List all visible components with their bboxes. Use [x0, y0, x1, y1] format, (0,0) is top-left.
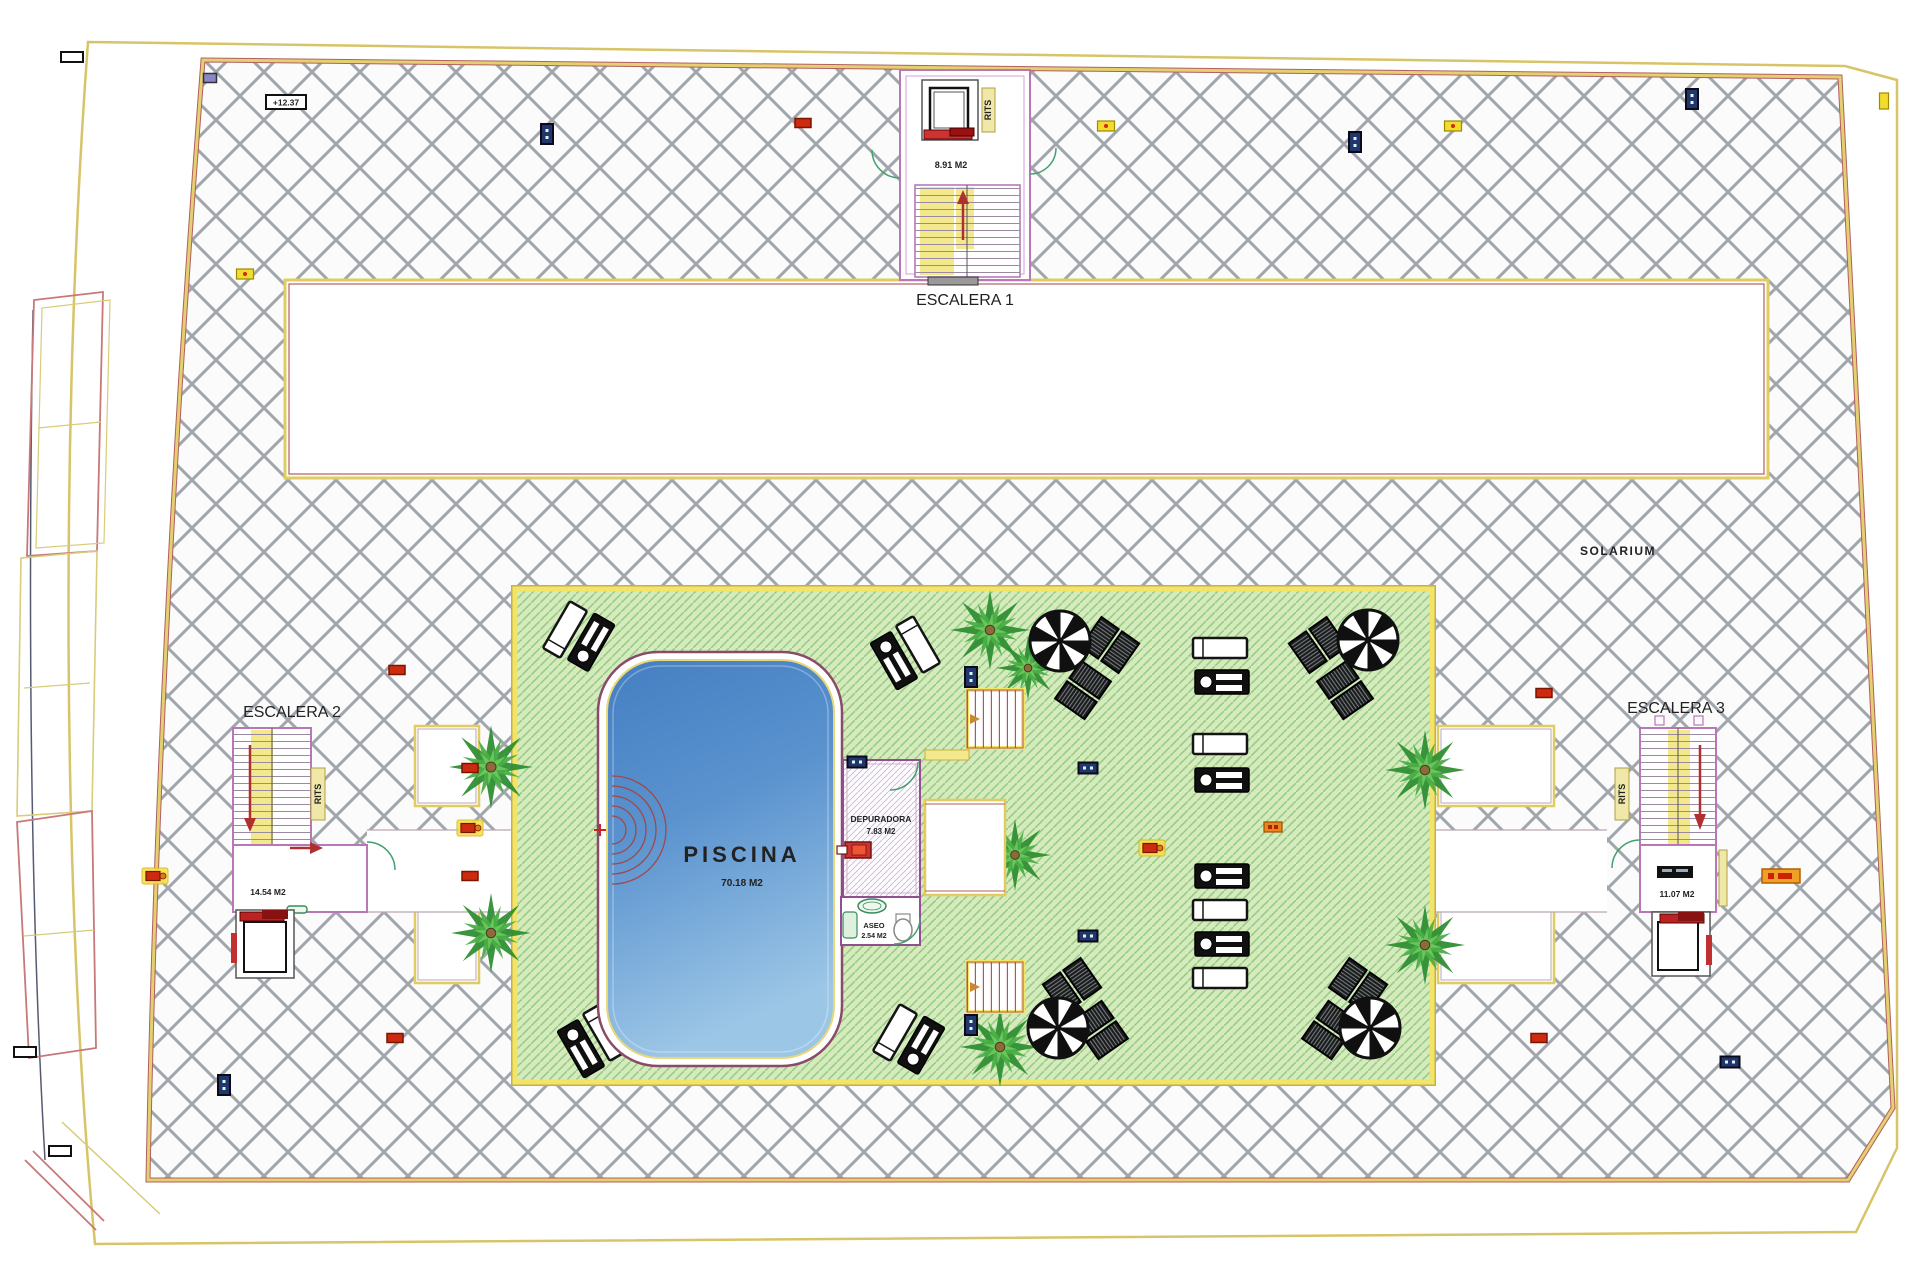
annotation-marker-blue-v	[1349, 132, 1361, 152]
annotation-marker-red	[462, 764, 478, 773]
annotation-marker-yellow	[1098, 121, 1115, 131]
stair-core-escalera-1: RITS 8.91 M2 ESCALERA 1	[872, 70, 1056, 309]
pool-name-label: PISCINA	[683, 842, 800, 867]
parasol-umbrella	[1028, 998, 1088, 1058]
elevator-car	[930, 88, 968, 132]
sun-lounger-occupied	[1195, 768, 1249, 792]
sun-lounger-white	[1193, 968, 1247, 988]
parasol-umbrella	[1340, 998, 1400, 1058]
property-line	[31, 310, 45, 1160]
parasol-umbrella	[1030, 611, 1090, 671]
floor-plan-canvas: PISCINA 70.18 M2 DEPURADORA 7.83 M2	[0, 0, 1920, 1280]
parasol-umbrella	[1338, 610, 1398, 670]
annotation-marker-blue-v	[965, 1015, 977, 1035]
sink-fixture	[858, 899, 886, 913]
vestibule	[233, 845, 367, 912]
sun-lounger-white	[1193, 638, 1247, 658]
elevation-label: +12.37	[273, 98, 300, 108]
annotation-marker-orange-tag	[1762, 869, 1800, 883]
annotation-marker-blue-v	[541, 124, 553, 144]
annotation-marker-blue-v	[218, 1075, 230, 1095]
rits-label: RITS	[313, 784, 323, 805]
annotation-marker-red	[389, 666, 405, 675]
annotation-marker-tick-purple	[204, 74, 217, 83]
annotation-marker-blue	[1079, 931, 1098, 942]
annotation-marker-red-yellow	[457, 820, 483, 836]
escalera3-area-label: 11.07 M2	[1660, 889, 1695, 899]
annotation-marker-red	[1536, 689, 1552, 698]
escalera2-title: ESCALERA 2	[243, 704, 341, 721]
pool-area-label: 70.18 M2	[721, 878, 763, 889]
escalera1-area-label: 8.91 M2	[935, 160, 968, 170]
vestibule	[1640, 845, 1716, 912]
annotation-marker-red	[387, 1034, 403, 1043]
annotation-marker-red	[795, 119, 811, 128]
sun-lounger-occupied	[1195, 864, 1249, 888]
annotation-marker-yellow	[1445, 121, 1462, 131]
sun-lounger-occupied	[1195, 932, 1249, 956]
aseo-name-label: ASEO	[863, 921, 884, 930]
sun-lounger-occupied	[1195, 670, 1249, 694]
annotation-marker-yellow	[237, 269, 254, 279]
floor-plan-svg: PISCINA 70.18 M2 DEPURADORA 7.83 M2	[0, 0, 1920, 1280]
annotation-marker-red	[1531, 1034, 1547, 1043]
depuradora-area-label: 7.83 M2	[867, 827, 896, 836]
palm-tree	[1385, 730, 1465, 810]
elevation-marker: +12.37	[266, 95, 306, 109]
annotation-marker-blue-v	[1686, 89, 1698, 109]
sun-lounger-white	[1193, 900, 1247, 920]
escalera3-title: ESCALERA 3	[1627, 700, 1725, 717]
annotation-marker-tick	[49, 1146, 71, 1156]
palm-tree	[451, 893, 531, 973]
recreation-deck: PISCINA 70.18 M2 DEPURADORA 7.83 M2	[449, 586, 1465, 1087]
deck-entry-steps	[967, 690, 1023, 748]
depuradora-room: DEPURADORA 7.83 M2	[837, 760, 920, 897]
annotation-marker-blue-v	[965, 667, 977, 687]
annotation-marker-blue	[1079, 763, 1098, 774]
annotation-marker-red	[462, 872, 478, 881]
toilet-bowl	[894, 919, 912, 941]
annotation-marker-tick	[61, 52, 83, 62]
solarium-label: SOLARIUM	[1580, 544, 1656, 558]
annotation-marker-yellow-v	[1880, 93, 1889, 109]
escalera2-area-label: 14.54 M2	[250, 887, 286, 897]
annotation-marker-blue	[848, 757, 867, 768]
sun-lounger-white	[1193, 734, 1247, 754]
annotation-marker-tick	[14, 1047, 36, 1057]
annotation-marker-blue	[1721, 1057, 1740, 1068]
palm-tree	[1385, 905, 1465, 985]
escalera1-title: ESCALERA 1	[916, 292, 1014, 309]
annotation-marker-red-yellow	[142, 868, 168, 884]
aseo-area-label: 2.54 M2	[861, 933, 886, 940]
swimming-pool: PISCINA 70.18 M2	[594, 652, 842, 1066]
annotation-marker-orange	[1264, 822, 1282, 832]
stair-run	[915, 185, 1020, 285]
lower-building-void	[285, 280, 1768, 478]
deck-entry-steps	[967, 962, 1023, 1012]
rits-label: RITS	[983, 100, 993, 121]
annotation-marker-red-yellow	[1139, 840, 1165, 856]
rits-label: RITS	[1617, 784, 1627, 805]
depuradora-name-label: DEPURADORA	[851, 814, 912, 824]
aseo-room: ASEO 2.54 M2	[841, 897, 920, 945]
shower-fixture	[843, 912, 857, 938]
